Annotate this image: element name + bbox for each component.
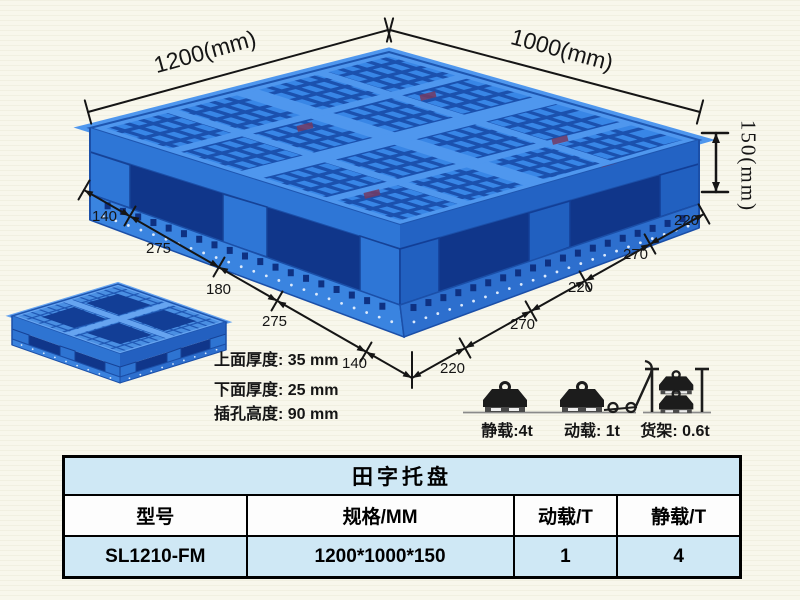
dim-left-3: 180 [206, 281, 231, 298]
mini-pallet-illustration [12, 284, 226, 383]
spec-table-title: 田字托盘 [65, 458, 739, 496]
dim-right-1: 220 [440, 360, 465, 377]
static-load-icon [483, 383, 527, 413]
dim-right-3: 220 [568, 279, 593, 296]
note-top-thickness: 上面厚度: 35 mm [214, 353, 338, 369]
column-header-static-load: 静载/T [616, 496, 739, 535]
main-pallet-illustration [89, 51, 701, 337]
spec-table-header-row: 型号 规格/MM 动载/T 静载/T [65, 496, 739, 535]
column-header-model: 型号 [65, 496, 246, 535]
cell-dynamic-load: 1 [513, 537, 617, 576]
note-bottom-thickness: 下面厚度: 25 mm [214, 383, 338, 399]
cell-static-load: 4 [616, 537, 739, 576]
dim-right-5: 220 [674, 212, 699, 229]
dim-left-5: 140 [342, 355, 367, 372]
rack-load-icon [645, 369, 709, 413]
dim-right-2: 270 [510, 316, 535, 333]
pallet-product-sheet: 1200(mm) 1000(mm) 150(mm) 140 275 180 27… [0, 0, 800, 600]
column-header-size: 规格/MM [246, 496, 513, 535]
cell-model: SL1210-FM [65, 537, 246, 576]
spec-table-data-row: SL1210-FM 1200*1000*150 1 4 [65, 535, 739, 576]
load-rating-icons [463, 361, 711, 413]
static-load-label: 静载:4t [481, 417, 533, 441]
dim-left-1: 140 [92, 208, 117, 225]
dim-left-2: 275 [146, 240, 171, 257]
dim-left-4: 275 [262, 313, 287, 330]
spec-table: 田字托盘 型号 规格/MM 动载/T 静载/T SL1210-FM 1200*1… [62, 455, 742, 579]
dim-right-4: 270 [623, 246, 648, 263]
dim-label-side-height: 150(mm) [736, 120, 761, 212]
rack-load-label: 货架: 0.6t [640, 417, 709, 441]
note-slot-height: 插孔高度: 90 mm [214, 407, 338, 423]
dynamic-load-label: 动载: 1t [564, 417, 620, 441]
column-header-dynamic-load: 动载/T [513, 496, 617, 535]
cell-size: 1200*1000*150 [246, 537, 513, 576]
dynamic-load-icon [560, 361, 652, 412]
